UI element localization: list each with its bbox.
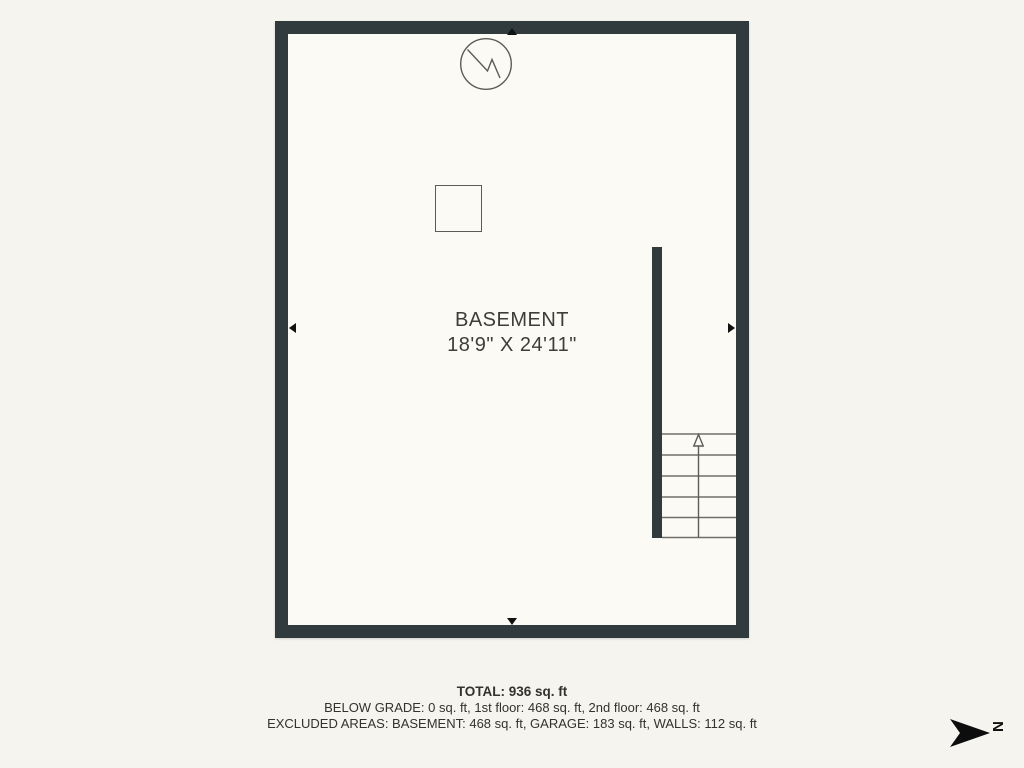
room-dimensions-label: 18'9" X 24'11" (288, 333, 736, 358)
utility-circle (461, 39, 512, 90)
compass: N (948, 710, 1018, 755)
room-label-block: BASEMENT 18'9" X 24'11" (288, 308, 736, 358)
north-arrow-icon (948, 712, 992, 752)
summary-below-grade-line: BELOW GRADE: 0 sq. ft, 1st floor: 468 sq… (0, 700, 1024, 716)
dimension-arrow-up-icon (507, 28, 517, 35)
summary-excluded-areas-line: EXCLUDED AREAS: BASEMENT: 468 sq. ft, GA… (0, 716, 1024, 732)
stairs-up-arrow-icon (694, 435, 703, 447)
circle-zigzag-utility-icon (459, 37, 513, 91)
dimension-arrow-down-icon (507, 618, 517, 625)
room-name-label: BASEMENT (288, 308, 736, 333)
square-column-icon (435, 185, 482, 232)
compass-north-letter: N (989, 721, 1006, 732)
summary-total-line: TOTAL: 936 sq. ft (0, 684, 1024, 700)
staircase (652, 247, 736, 539)
stair-interior-wall (652, 247, 662, 538)
utility-zigzag (468, 50, 501, 79)
floor-plan-page: BASEMENT 18'9" X 24'11" TOTAL: 936 sq. f… (0, 0, 1024, 768)
area-summary: TOTAL: 936 sq. ft BELOW GRADE: 0 sq. ft,… (0, 684, 1024, 732)
north-arrow-dart (950, 719, 990, 747)
